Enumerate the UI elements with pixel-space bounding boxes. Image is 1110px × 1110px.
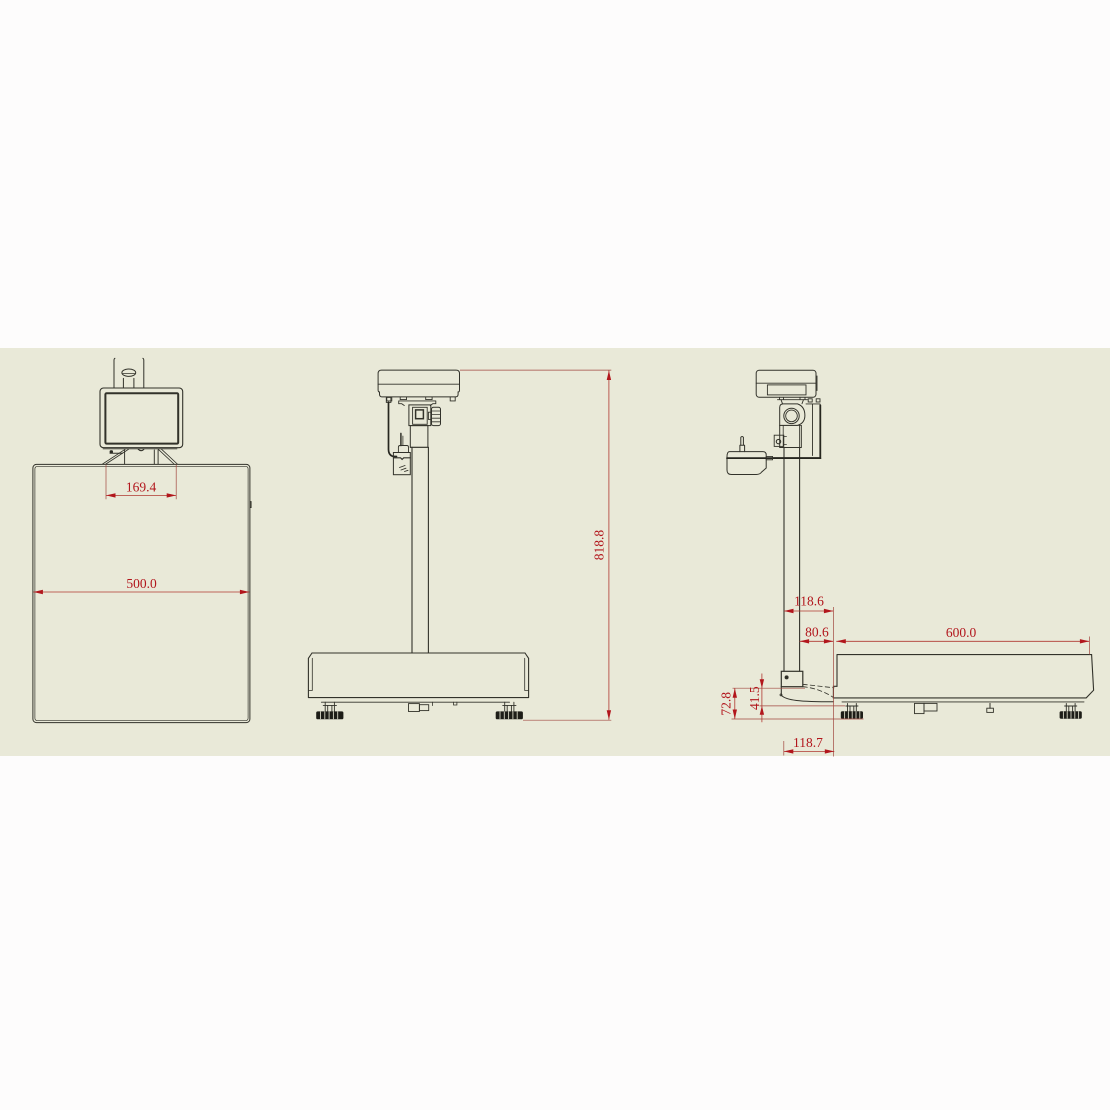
svg-text:72.8: 72.8 xyxy=(718,692,733,716)
svg-text:600.0: 600.0 xyxy=(946,625,977,640)
svg-text:169.4: 169.4 xyxy=(126,480,157,495)
svg-text:500.0: 500.0 xyxy=(126,576,157,591)
svg-text:818.8: 818.8 xyxy=(592,530,607,561)
svg-text:41.5: 41.5 xyxy=(747,686,762,710)
svg-text:118.6: 118.6 xyxy=(794,593,824,608)
svg-text:118.7: 118.7 xyxy=(793,735,823,750)
svg-text:80.6: 80.6 xyxy=(805,624,829,639)
